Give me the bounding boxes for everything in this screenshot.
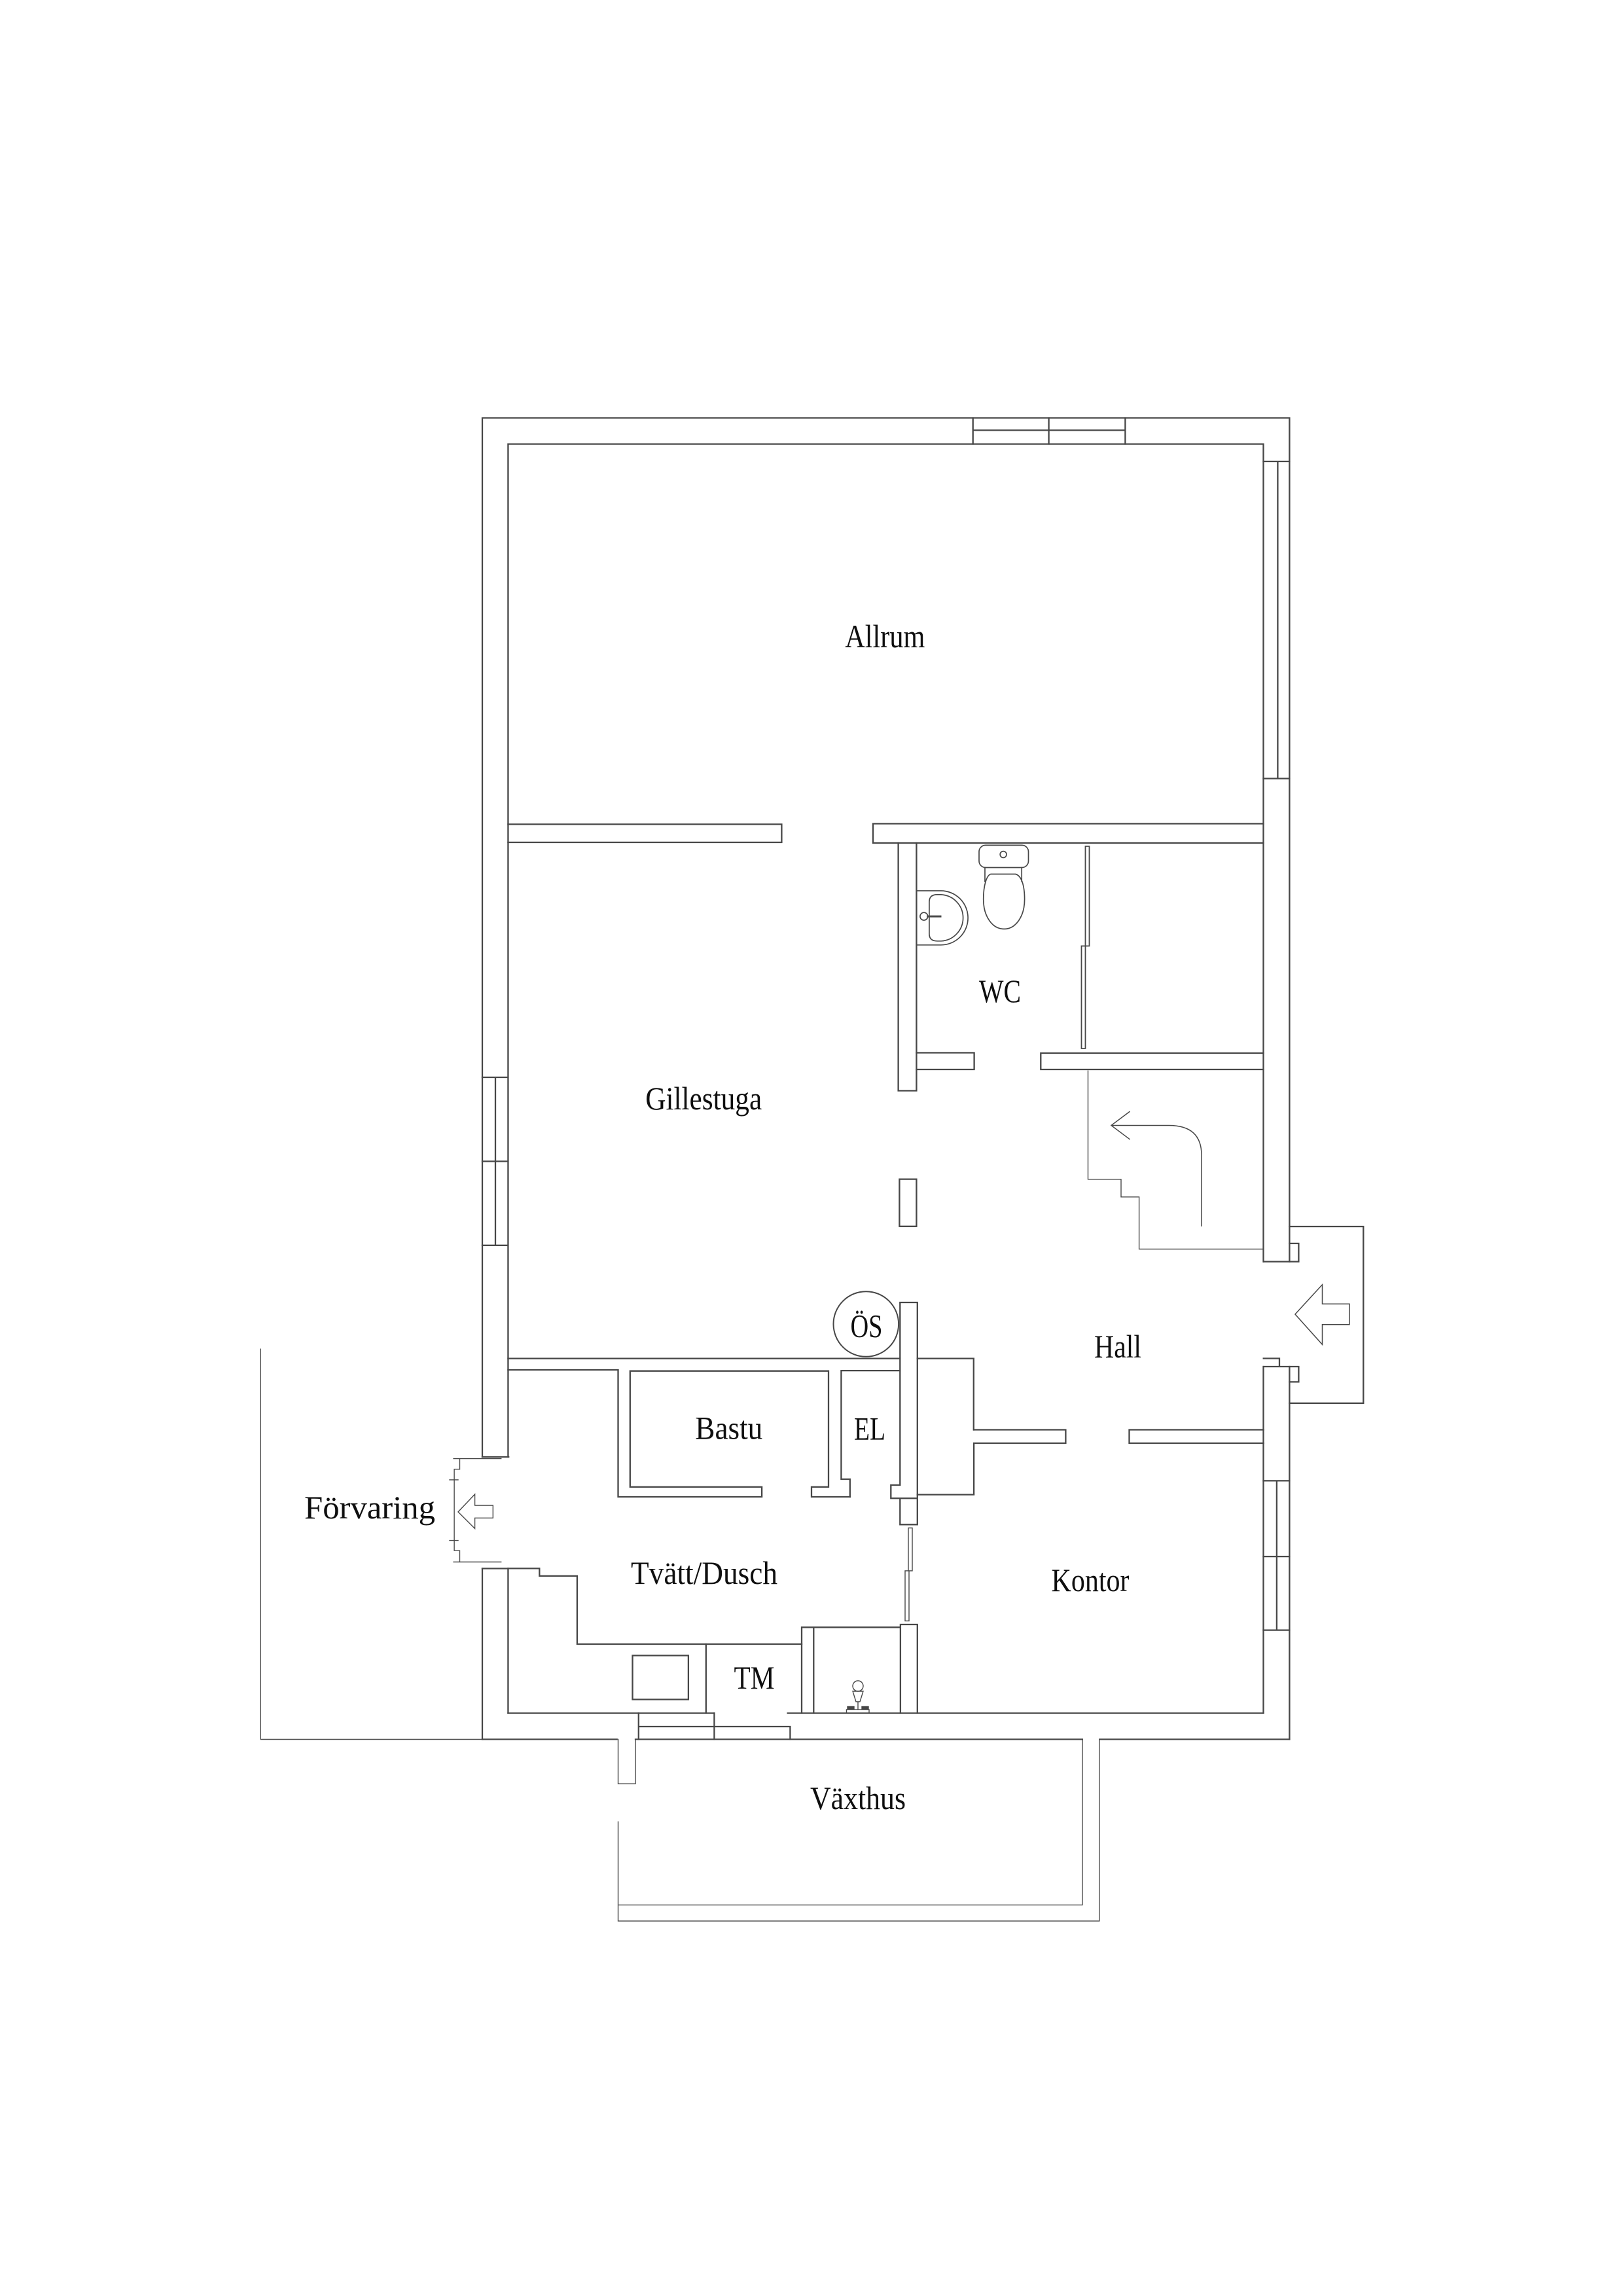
svg-text:TM: TM	[734, 1659, 775, 1696]
svg-text:Gillestuga: Gillestuga	[645, 1080, 762, 1117]
svg-text:EL: EL	[854, 1410, 885, 1447]
svg-text:Tvätt/Dusch: Tvätt/Dusch	[631, 1554, 777, 1591]
svg-text:Hall: Hall	[1094, 1328, 1141, 1365]
svg-text:WC: WC	[979, 973, 1021, 1009]
svg-text:Kontor: Kontor	[1052, 1562, 1130, 1598]
svg-text:Växthus: Växthus	[810, 1780, 906, 1816]
svg-text:Allrum: Allrum	[845, 618, 925, 655]
svg-text:Förvaring: Förvaring	[304, 1489, 435, 1526]
svg-text:Bastu: Bastu	[695, 1410, 762, 1446]
svg-text:ÖS: ÖS	[851, 1307, 883, 1344]
